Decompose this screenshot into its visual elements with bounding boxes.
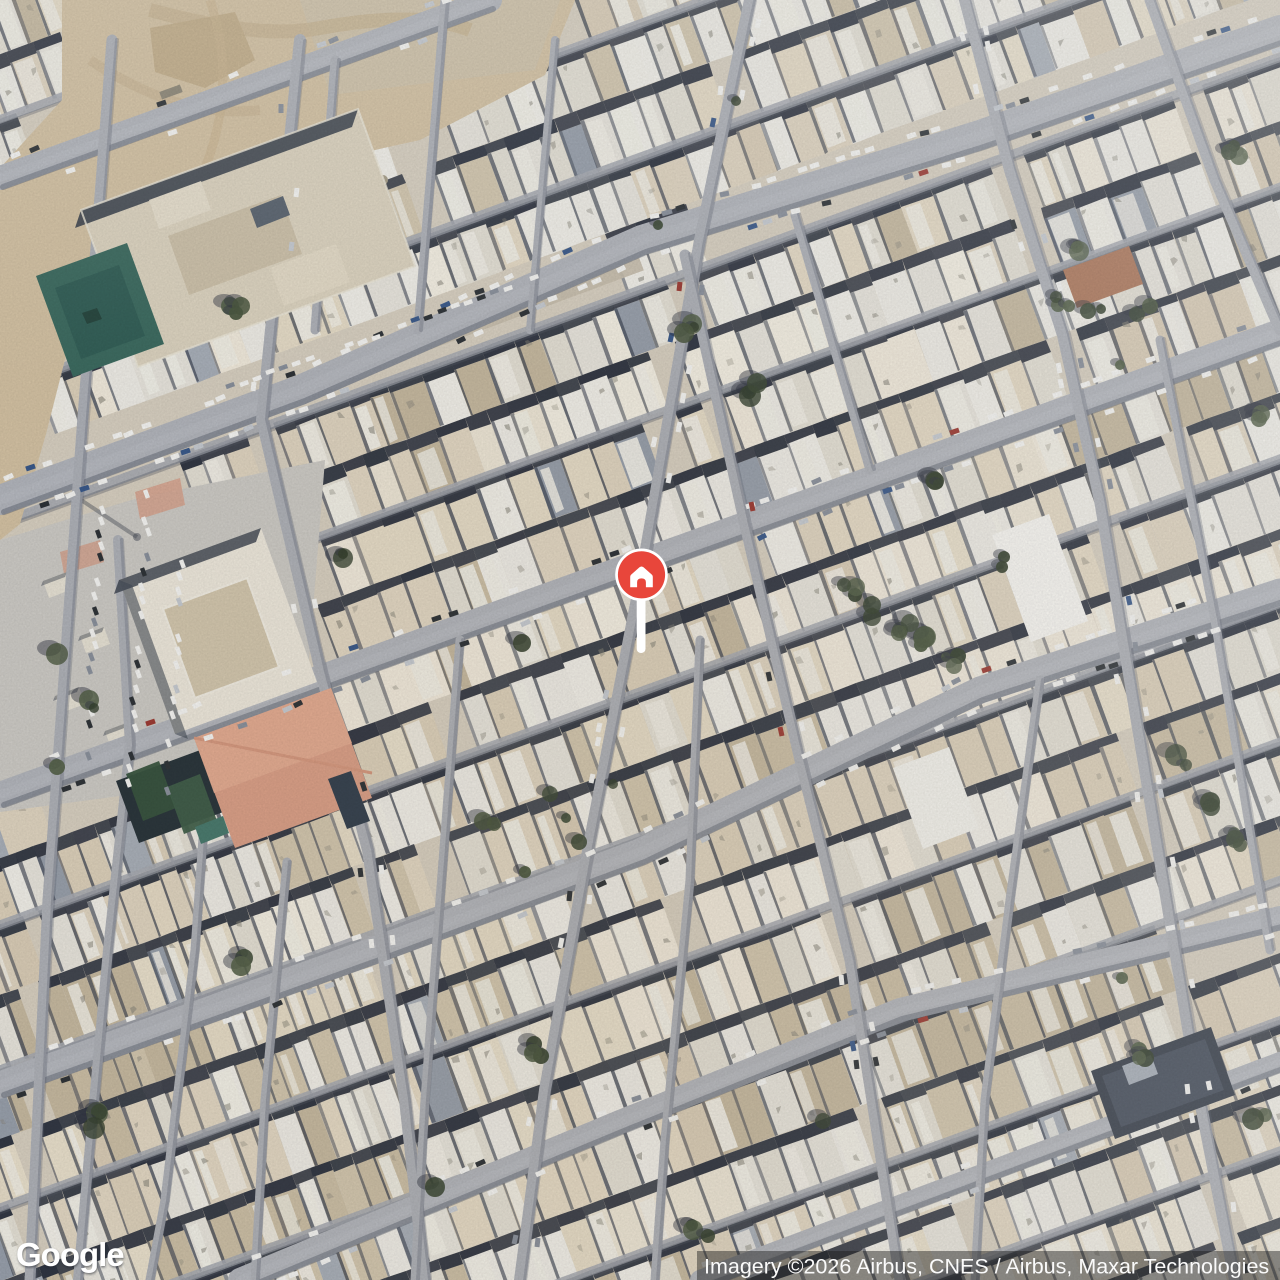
svg-text:Imagery ©2026 Airbus, CNES / A: Imagery ©2026 Airbus, CNES / Airbus, Max… xyxy=(704,1255,1269,1279)
svg-text:Google: Google xyxy=(16,1236,124,1273)
